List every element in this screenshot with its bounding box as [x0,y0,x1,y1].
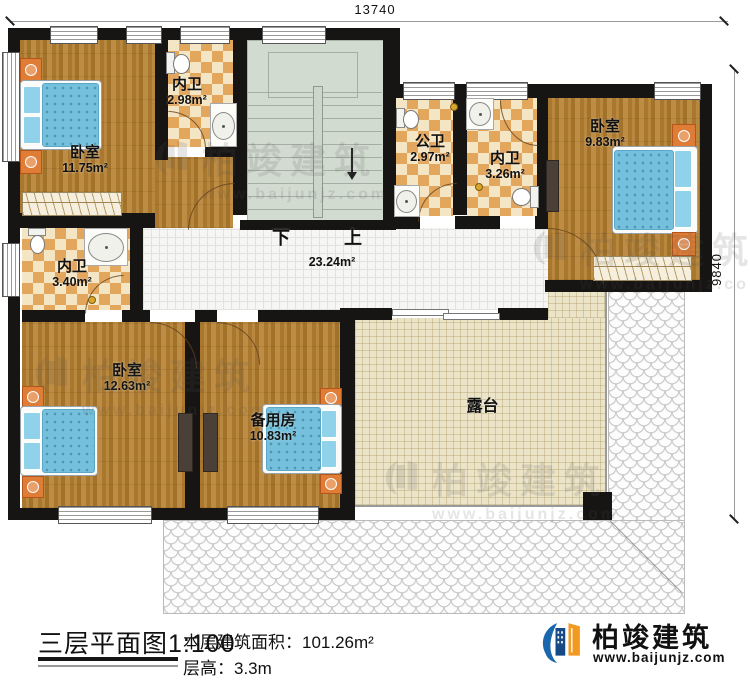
window [50,26,98,44]
wall [498,308,548,320]
wall [122,310,150,322]
room-area: 23.24m² [294,255,370,269]
floor-height-text: 层高：3.3m [183,654,272,679]
bedroom-bl-label: 卧室 12.63m² [77,362,177,394]
door-leaf [203,413,218,472]
wall [340,310,355,520]
floor-height-label: 层高： [183,659,234,678]
wall [160,147,168,157]
nightstand [672,124,696,148]
bed-pillow [321,410,337,438]
toilet-icon [530,186,539,208]
tv-cabinet [546,160,559,212]
floor-height-value: 3.3m [234,659,272,678]
bed-pillow [23,412,41,440]
door-knob-icon [475,183,483,191]
floor-area-label: 本层建筑面积： [183,633,302,652]
stair-rail [313,86,323,218]
closet [593,256,692,281]
room-name: 卧室 [35,144,135,161]
window [403,82,455,100]
dimension-height: 9840 [709,253,724,286]
toilet-icon [512,188,531,206]
wall [130,228,143,312]
room-name: 内卫 [470,150,540,167]
room-area: 3.26m² [470,167,540,181]
dimension-line-right [734,70,735,520]
door-knob-icon [450,103,458,111]
room-name: 内卫 [37,258,107,275]
wall [383,216,420,229]
terrace-label: 露台 [440,398,525,416]
room-area: 11.75m² [35,161,135,175]
title-rule-thick [38,657,178,661]
window [180,26,230,44]
terrace-post [583,492,612,520]
wall [195,310,217,322]
room-area: 12.63m² [77,379,177,393]
brand-website: www.baijunjz.com [593,650,726,665]
stair-arrow-head [347,172,357,180]
bath-tr-label: 内卫 3.26m² [470,150,540,182]
roof-bottom [163,520,685,614]
wall [383,28,400,98]
bedroom-tr-label: 卧室 9.83m² [555,118,655,150]
wall [340,308,392,320]
floor-plan: 卧室 11.75m² 内卫 2.98m² 公卫 2.97m² 内卫 3.26m²… [0,0,750,681]
stairs-up-label: 上 [340,228,366,249]
nightstand [20,58,42,82]
door-leaf [178,413,193,472]
bed-pillow [23,442,41,470]
floor-drain-icon [88,296,96,304]
nightstand [22,476,44,498]
toilet-icon [173,54,190,74]
nightstand [22,386,44,408]
bed-pillow [674,190,692,228]
wall [240,220,396,230]
bed-mattress [42,409,95,473]
down-label: 下 [272,228,290,248]
hall-area-label: 23.24m² [294,255,370,269]
room-area: 9.83m² [555,135,655,149]
dimension-width: 13740 [330,2,420,17]
window [654,82,701,100]
bath-tl-label: 内卫 2.98m² [152,76,222,108]
sliding-door-panel [443,313,500,320]
dimension-line-top [10,21,728,22]
up-label: 上 [344,228,362,248]
sliding-door-panel [392,309,449,316]
bed-mattress [42,83,99,147]
terrace-floor-upper [548,292,607,318]
window [262,26,326,44]
room-area: 2.97m² [395,150,465,164]
bath-public-label: 公卫 2.97m² [395,133,465,165]
sink-icon [212,112,235,140]
room-area: 10.83m² [223,429,323,443]
window [58,506,152,524]
sink-icon [469,102,491,126]
bed-pillow [321,440,337,468]
room-name: 内卫 [152,76,222,93]
spare-room-label: 备用房 10.83m² [223,412,323,444]
bed-pillow [23,116,41,144]
floor-area-text: 本层建筑面积：101.26m² [183,628,374,653]
nightstand [672,232,696,256]
window [126,26,162,44]
room-name: 公卫 [395,133,465,150]
window [2,243,20,297]
bath-ml-label: 内卫 3.40m² [37,258,107,290]
brand-logo-icon [536,616,588,671]
closet [22,192,122,216]
floor-area-value: 101.26m² [302,633,374,652]
title-rule-thin [38,665,178,667]
bed-pillow [674,150,692,188]
wall [455,216,500,229]
stairs-down-label: 下 [268,228,294,249]
room-name: 露台 [466,398,498,415]
toilet-icon [403,110,419,129]
wall [22,310,85,322]
window [2,52,20,162]
stair-arrow [351,148,353,172]
sink-icon [396,190,417,213]
wall [535,216,548,229]
room-name: 备用房 [223,412,323,429]
bed-mattress [614,150,674,230]
room-name: 卧室 [555,118,655,135]
room-area: 3.40m² [37,275,107,289]
bed-pillow [23,86,41,114]
window [227,506,319,524]
toilet-icon [30,235,45,254]
nightstand [320,474,342,494]
room-area: 2.98m² [152,93,222,107]
room-name: 卧室 [77,362,177,379]
bedroom-tl-label: 卧室 11.75m² [35,144,135,176]
